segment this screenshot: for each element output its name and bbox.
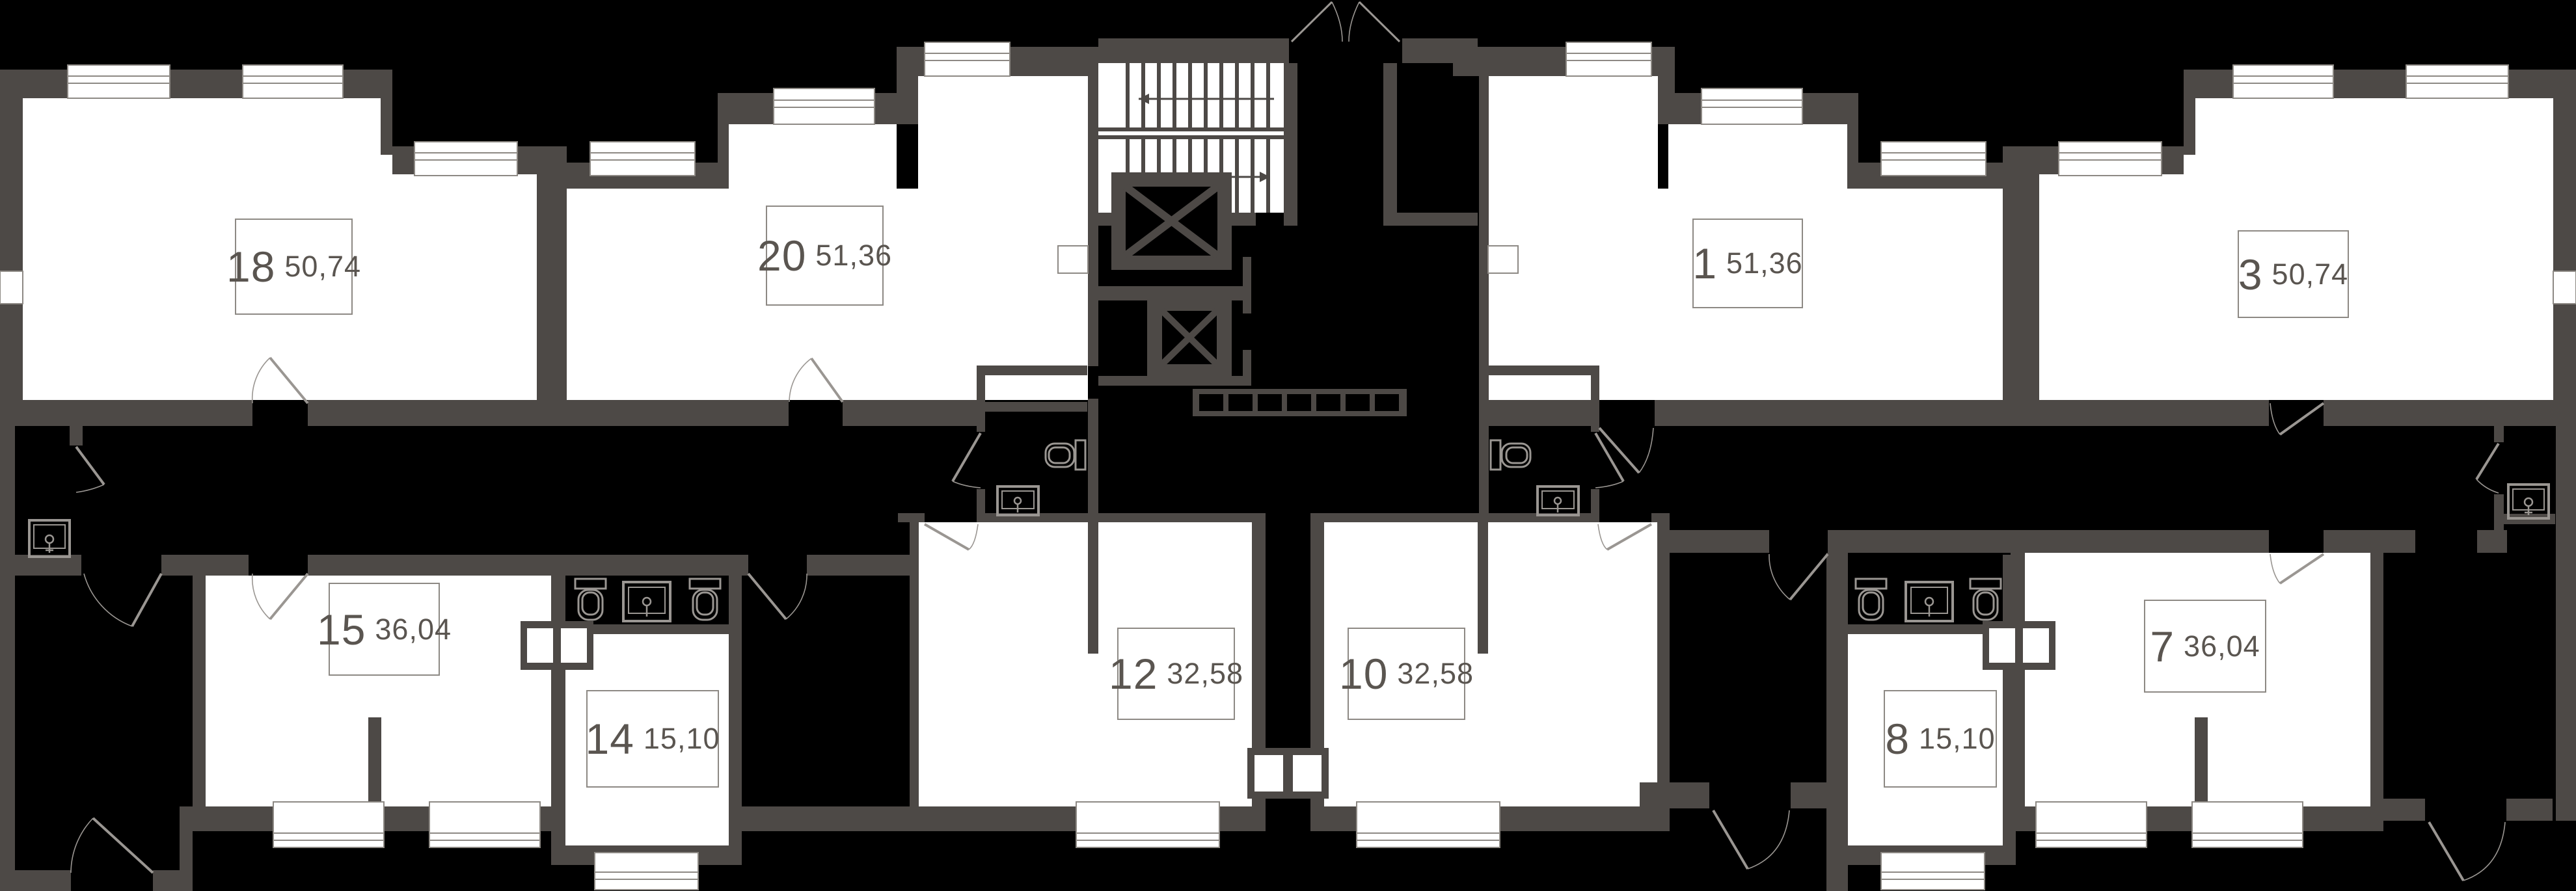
apartment-area: 32,58: [1167, 657, 1243, 691]
sink-icon: [997, 486, 1038, 515]
apartment-label-10: 10 32,58: [1348, 628, 1465, 720]
door-swing: [2270, 403, 2324, 434]
apartment-area: 50,74: [284, 250, 361, 284]
apartment-18-room-right: [392, 174, 537, 400]
door-swing: [953, 433, 981, 488]
apartment-label-14: 14 15,10: [586, 690, 719, 788]
door-swing: [748, 574, 807, 619]
sink-icon: [1538, 486, 1579, 515]
apartment-area: 36,04: [375, 613, 452, 646]
window: [429, 802, 540, 847]
window: [414, 142, 517, 176]
sink-icon: [29, 520, 70, 557]
apartment-area: 32,58: [1397, 657, 1474, 691]
wall-niche: [2553, 271, 2576, 304]
apartment-number: 20: [757, 231, 806, 280]
duct-shaft: [1193, 389, 1407, 416]
wall-connector: [1247, 748, 1329, 799]
window: [2192, 802, 2303, 847]
apartment-20-room-mid: [729, 124, 897, 189]
apartment-number: 18: [226, 242, 275, 291]
sink-icon: [1906, 582, 1953, 621]
window: [925, 42, 1010, 76]
door-swing: [76, 447, 104, 492]
apartment-number: 15: [317, 605, 366, 654]
apartment-number: 8: [1885, 714, 1910, 764]
door-swing: [71, 818, 153, 873]
floor-plan-canvas: [0, 0, 2576, 891]
apartment-number: 12: [1109, 649, 1158, 698]
apartment-area: 15,10: [1919, 722, 1996, 756]
apartment-area: 36,04: [2184, 630, 2260, 663]
window: [1881, 853, 1985, 890]
door-swing: [1292, 2, 1342, 42]
elevator-icon: [1111, 172, 1232, 270]
window: [590, 142, 695, 176]
apartment-area: 50,74: [2272, 258, 2349, 291]
apartment-label-20: 20 51,36: [766, 206, 884, 306]
window: [1566, 42, 1651, 76]
window: [2233, 65, 2333, 98]
apartment-number: 1: [1692, 239, 1717, 288]
apartment-label-15: 15 36,04: [329, 583, 440, 676]
door-swing: [1349, 2, 1400, 42]
window: [1881, 142, 1986, 176]
door-swing: [1599, 428, 1653, 473]
elevators: [1111, 172, 1232, 377]
toilet-icon: [1856, 579, 1886, 620]
window: [243, 65, 343, 98]
window: [1357, 802, 1500, 847]
door-swing: [1595, 433, 1623, 488]
apartment-1-room-mid: [1668, 124, 1847, 189]
sink-icon: [2508, 485, 2549, 518]
toilet-icon: [1491, 440, 1530, 470]
toilet-icon: [1970, 579, 2001, 620]
apartment-1-room-left: [1489, 76, 1658, 189]
toilet-icon: [575, 579, 606, 620]
apartment-label-18: 18 50,74: [235, 219, 353, 315]
window: [68, 65, 170, 98]
wall-niche: [0, 271, 23, 304]
door-swing: [84, 574, 161, 626]
wall-niche: [1488, 246, 1518, 273]
apartment-label-1: 1 51,36: [1692, 219, 1803, 308]
apartment-label-7: 7 36,04: [2144, 600, 2266, 693]
apartment-label-8: 8 15,10: [1884, 690, 1997, 788]
door-swing: [2476, 444, 2499, 493]
apartment-number: 3: [2238, 250, 2263, 299]
apartment-area: 51,36: [815, 239, 892, 273]
apartment-20-room-right: [918, 76, 1088, 189]
apartment-area: 15,10: [644, 722, 720, 756]
toilet-icon: [690, 579, 720, 620]
window: [2406, 65, 2508, 98]
wall-niche: [1058, 246, 1088, 273]
apartment-label-12: 12 32,58: [1117, 628, 1235, 720]
wall-connector: [521, 621, 593, 670]
apartment-3-room-left: [2039, 174, 2184, 400]
window: [2059, 142, 2162, 176]
elevator-icon: [1147, 298, 1232, 377]
window: [2036, 802, 2147, 847]
window: [273, 802, 384, 847]
apartment-number: 10: [1339, 649, 1388, 698]
door-swing: [2429, 822, 2505, 881]
door-swing: [1769, 554, 1828, 600]
window: [774, 88, 874, 124]
window: [1076, 802, 1219, 847]
apartment-label-3: 3 50,74: [2238, 230, 2349, 318]
apartment-area: 51,36: [1726, 246, 1803, 280]
door-swing: [1713, 810, 1789, 869]
window: [1702, 88, 1802, 124]
sink-icon: [623, 582, 670, 621]
wall-connector: [1983, 621, 2055, 670]
window: [595, 853, 698, 890]
apartment-number: 7: [2150, 622, 2175, 671]
floor-plan: 18 50,74 20 51,36 1 51,36 3 50,74 15 36,…: [0, 0, 2576, 891]
apartment-number: 14: [585, 714, 634, 764]
toilet-icon: [1046, 440, 1085, 470]
